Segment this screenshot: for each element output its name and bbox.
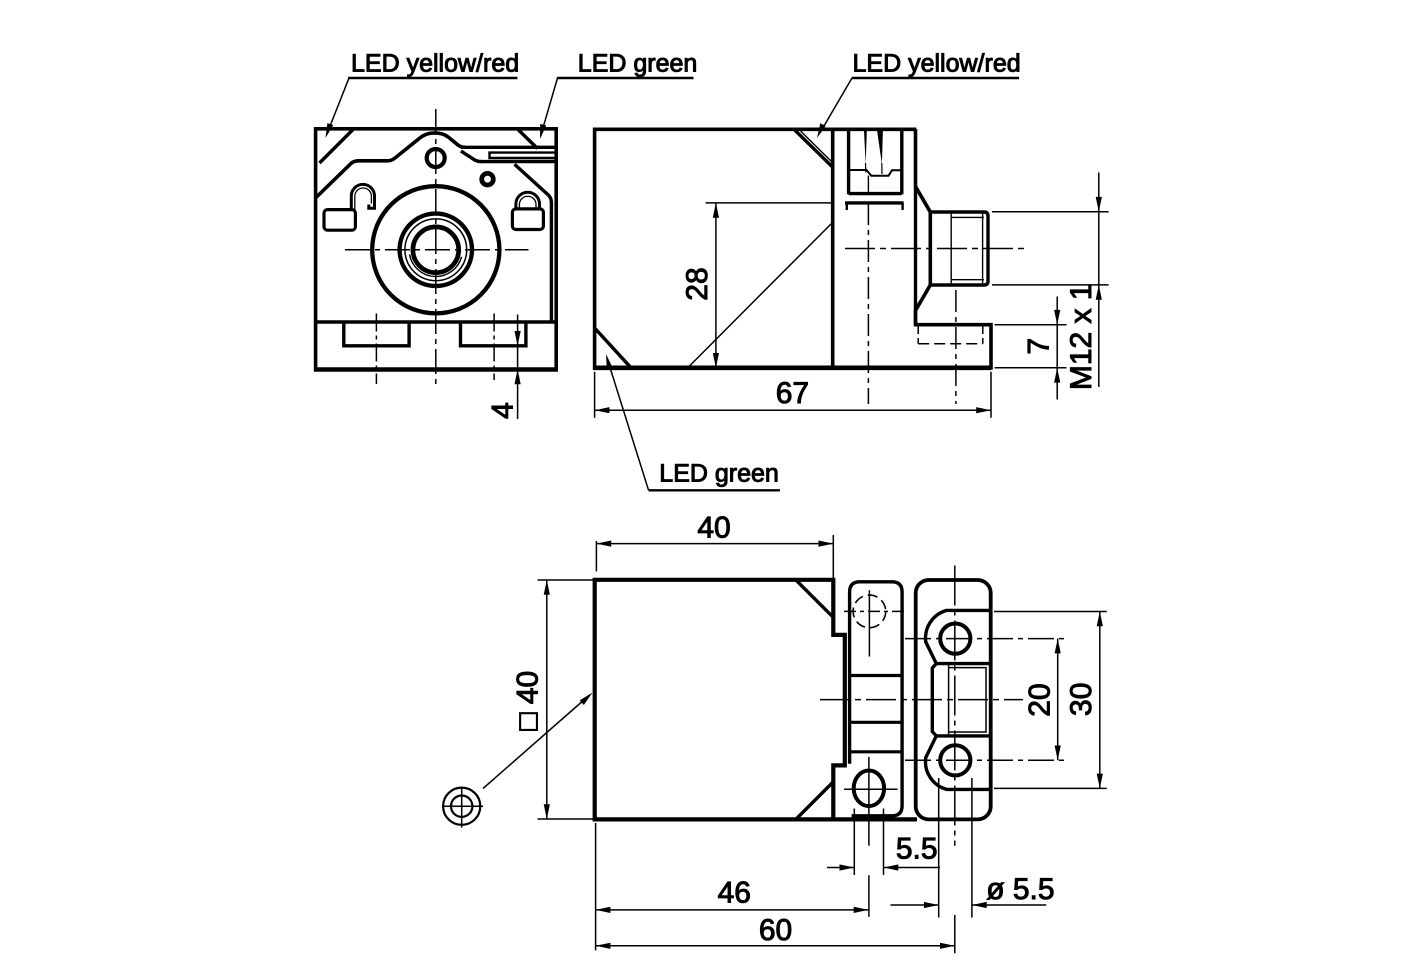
svg-text:M12 x 1: M12 x 1 [1065,283,1098,390]
svg-text:4: 4 [487,402,520,419]
svg-text:28: 28 [681,267,714,300]
svg-text:LED green: LED green [578,50,698,78]
svg-text:5.5: 5.5 [896,833,938,866]
svg-text:46: 46 [718,876,751,909]
svg-text:LED yellow/red: LED yellow/red [351,50,519,78]
svg-text:7: 7 [1023,338,1056,355]
svg-text:20: 20 [1024,683,1057,716]
svg-text:60: 60 [759,914,792,947]
svg-text:LED green: LED green [659,460,779,488]
svg-text:□ 40: □ 40 [512,671,545,731]
svg-text:67: 67 [776,377,809,410]
svg-text:40: 40 [697,512,730,545]
svg-text:ø 5.5: ø 5.5 [986,873,1054,906]
svg-text:LED yellow/red: LED yellow/red [853,50,1021,78]
svg-text:30: 30 [1065,683,1098,716]
